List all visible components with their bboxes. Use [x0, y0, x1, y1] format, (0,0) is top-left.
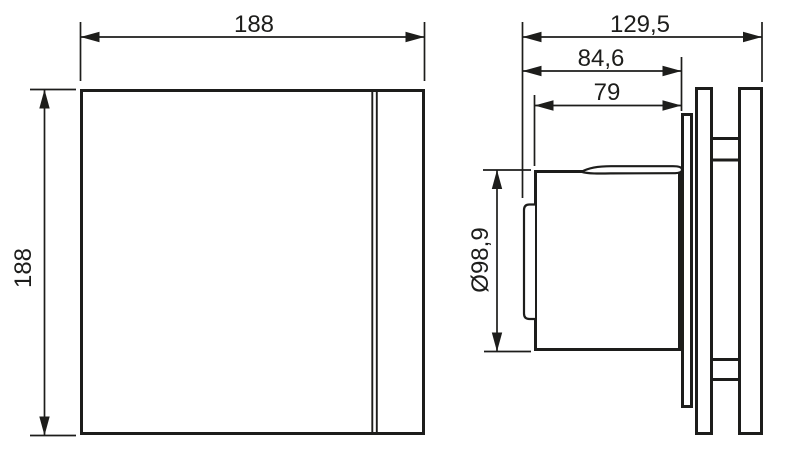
dimension-label-body-depth: 84,6 [578, 45, 625, 72]
panel-spacer-top [713, 139, 738, 161]
dimension-label-duct-diameter: Ø98,9 [467, 227, 494, 292]
technical-drawing-canvas: 188 188 [0, 0, 800, 459]
shutter-blade [582, 166, 683, 173]
dimension-label-front-width: 188 [234, 11, 274, 38]
dimension-label-duct-length: 79 [594, 79, 621, 106]
drawing-root: 188 188 [10, 11, 762, 436]
duct-body [536, 172, 680, 350]
dimension-duct-diameter: Ø98,9 [467, 170, 531, 352]
panel-spacer-bottom [713, 360, 738, 380]
dimension-front-width: 188 [81, 11, 425, 81]
front-panel-side [740, 89, 762, 434]
fan-dimension-drawing: 188 188 [0, 0, 800, 459]
body-frame [697, 89, 712, 434]
housing-flange [683, 115, 692, 407]
front-view [82, 91, 424, 434]
mounting-tab [524, 205, 535, 320]
dimension-duct-length: 79 [535, 79, 682, 166]
side-view [524, 89, 762, 434]
dimension-label-total-depth: 129,5 [610, 11, 670, 38]
dimension-label-front-height: 188 [10, 248, 37, 288]
dimension-front-height: 188 [10, 90, 76, 436]
